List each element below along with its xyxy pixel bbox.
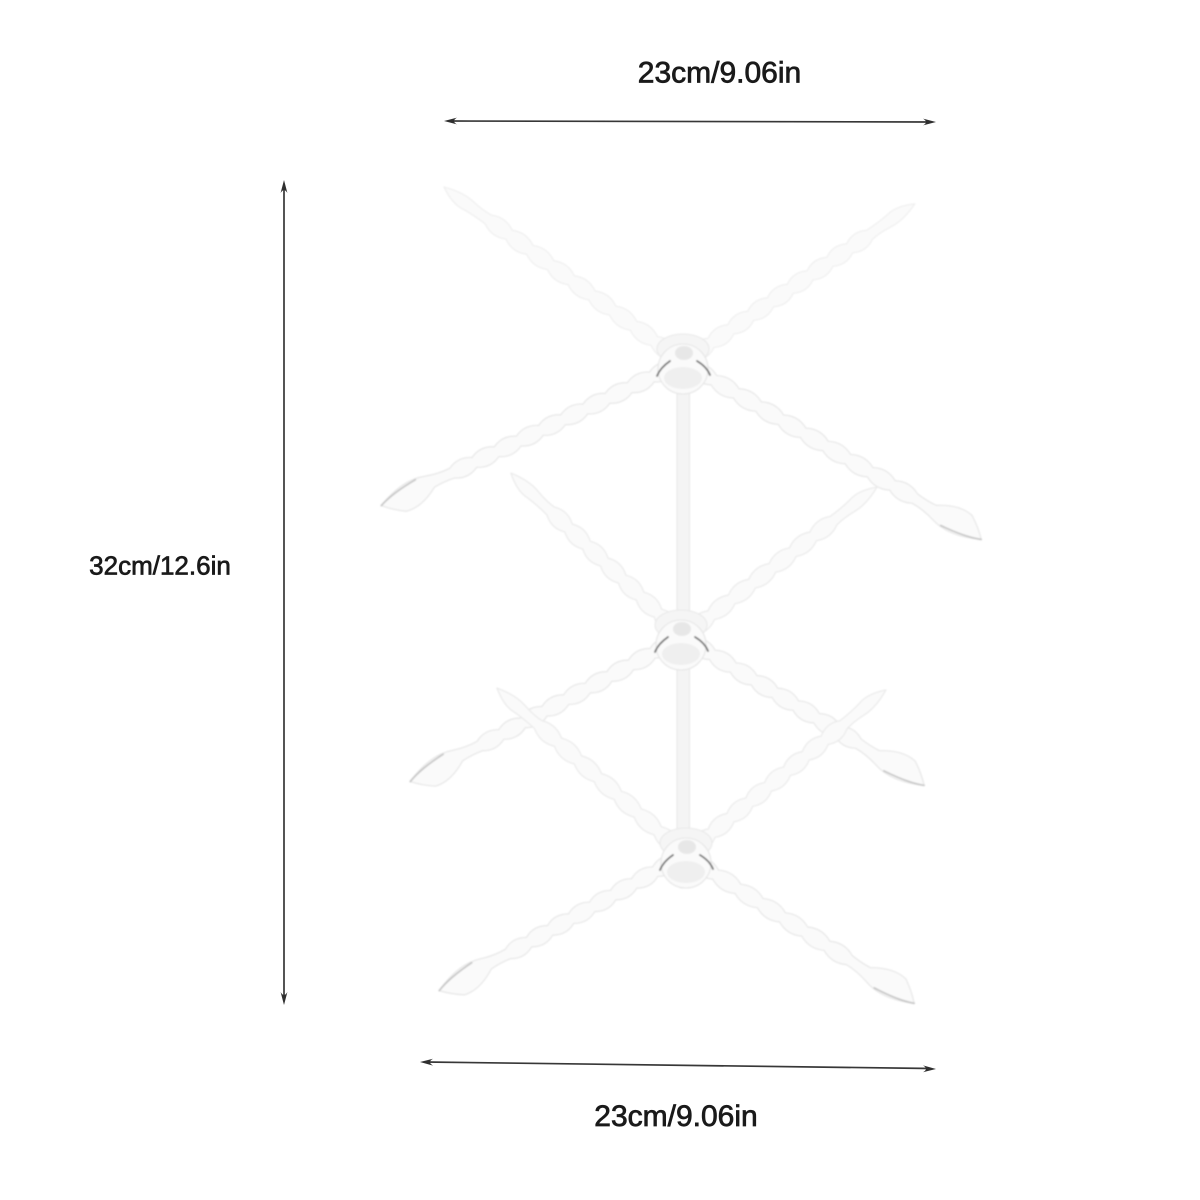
svg-text:32cm/12.6in: 32cm/12.6in xyxy=(89,551,231,581)
svg-text:23cm/9.06in: 23cm/9.06in xyxy=(638,57,801,90)
svg-text:23cm/9.06in: 23cm/9.06in xyxy=(594,1100,757,1133)
